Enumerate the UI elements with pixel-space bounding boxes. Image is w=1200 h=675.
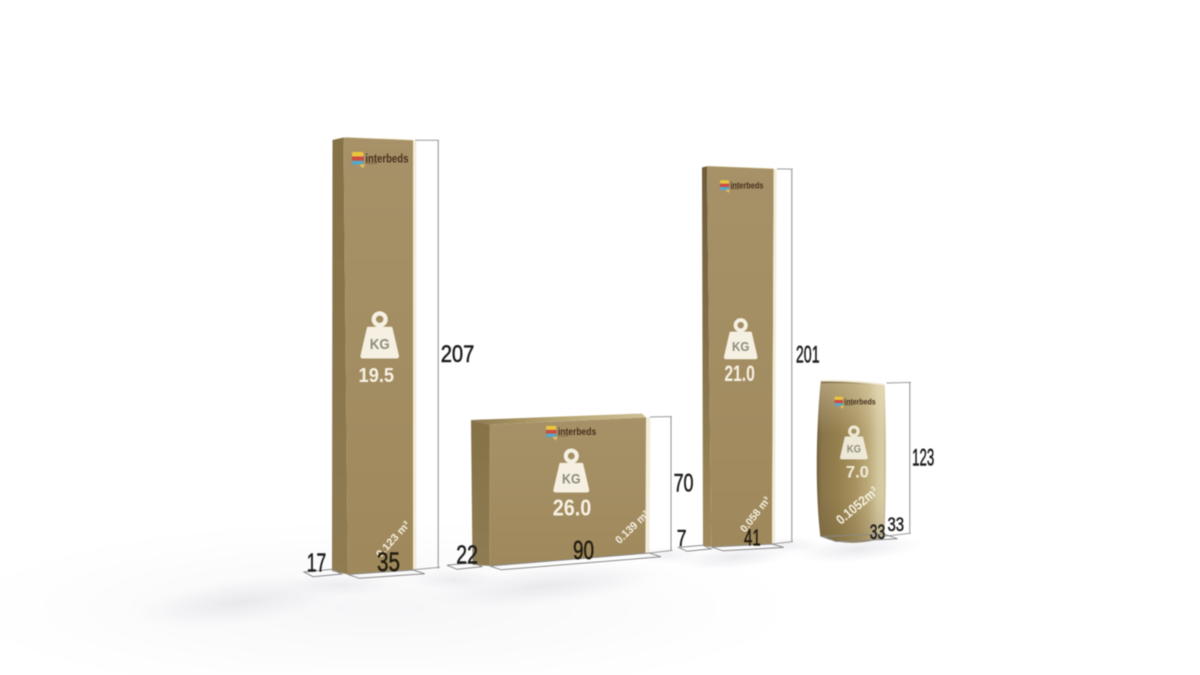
svg-text:90: 90 — [573, 537, 594, 565]
svg-text:7.0: 7.0 — [846, 462, 869, 481]
svg-text:207: 207 — [441, 341, 475, 368]
svg-text:123: 123 — [912, 445, 934, 472]
svg-text:201: 201 — [796, 341, 820, 368]
svg-text:22: 22 — [456, 539, 478, 569]
svg-text:70: 70 — [674, 469, 694, 497]
svg-text:35: 35 — [377, 547, 400, 577]
svg-text:41: 41 — [744, 525, 761, 551]
svg-text:21.0: 21.0 — [724, 361, 755, 386]
svg-text:33: 33 — [888, 514, 905, 536]
svg-text:26.0: 26.0 — [553, 495, 592, 521]
svg-text:19.5: 19.5 — [359, 364, 395, 387]
svg-text:17: 17 — [307, 547, 327, 577]
svg-text:33: 33 — [870, 521, 885, 544]
svg-text:7: 7 — [677, 525, 687, 551]
